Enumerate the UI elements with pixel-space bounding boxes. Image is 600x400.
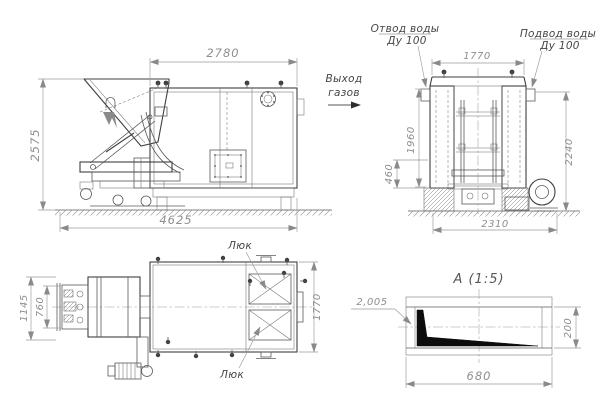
side-view-dimensions: 2780 2575 4625 bbox=[28, 46, 297, 232]
hatch-label-bottom: Люк bbox=[219, 327, 260, 381]
dim-height-outer: 1145 bbox=[19, 294, 30, 321]
hatch-top-text: Люк bbox=[227, 240, 252, 252]
boiler-body-front bbox=[421, 68, 535, 214]
fuel-feeder-plan bbox=[57, 277, 153, 379]
water-outlet-nozzle bbox=[421, 89, 430, 101]
dim-width-top: 2780 bbox=[206, 46, 239, 60]
dim-height-right: 1770 bbox=[312, 293, 323, 320]
dim-leader-text: 2,005 bbox=[356, 297, 387, 308]
water-inlet-line1: Подвод воды bbox=[520, 28, 596, 40]
wheel-icon bbox=[141, 196, 151, 206]
dim-height-inner: 760 bbox=[35, 297, 46, 318]
fuel-hopper-loader bbox=[80, 79, 185, 206]
water-inlet-line2: Ду 100 bbox=[539, 40, 580, 52]
pipe-stub bbox=[261, 257, 271, 262]
foundation-block bbox=[502, 188, 528, 211]
dim-height-left: 2575 bbox=[28, 128, 42, 161]
manhole-top bbox=[249, 274, 291, 304]
water-inlet-label: Подвод воды Ду 100 bbox=[520, 28, 596, 87]
scraper-wedge-profile bbox=[417, 310, 538, 346]
water-outlet-line1: Отвод воды bbox=[371, 23, 440, 35]
ground-hatch bbox=[408, 212, 580, 217]
plan-view: Люк Люк 1145 760 1770 bbox=[19, 240, 323, 381]
tip-direction-arrow-icon bbox=[103, 112, 117, 128]
water-inlet-nozzle bbox=[526, 89, 535, 101]
front-elevation-view: Отвод воды Ду 100 Подвод воды Ду 100 177… bbox=[371, 23, 597, 234]
furnace-door bbox=[210, 150, 246, 182]
water-outlet-line2: Ду 100 bbox=[386, 35, 427, 47]
dim-height-right: 2240 bbox=[564, 138, 575, 165]
gas-label-line1: Выход bbox=[326, 73, 363, 85]
side-nozzle bbox=[297, 99, 304, 115]
dim-height-base: 460 bbox=[384, 164, 395, 185]
detail-a-view: А (1:5) 2,005 680 200 bbox=[351, 272, 581, 388]
drive-pump-icon bbox=[81, 189, 92, 200]
front-view-dimensions: 1770 1960 460 2240 2310 bbox=[384, 51, 575, 234]
water-outlet-label: Отвод воды Ду 100 bbox=[371, 23, 440, 87]
dim-height-mid: 1960 bbox=[406, 126, 417, 153]
thickness-leader: 2,005 bbox=[351, 297, 411, 324]
detail-a-section bbox=[398, 289, 560, 363]
gas-label-line2: газов bbox=[328, 87, 360, 99]
boiler-body-side bbox=[150, 81, 304, 210]
detail-title: А (1:5) bbox=[452, 272, 504, 287]
dim-width-bottom: 4625 bbox=[159, 213, 192, 227]
dim-width-bottom: 2310 bbox=[481, 219, 508, 230]
ground-hatch bbox=[55, 211, 332, 216]
lifting-eye-icon bbox=[156, 81, 284, 88]
gas-flow-arrow-icon bbox=[351, 102, 361, 109]
flange-icon bbox=[261, 92, 276, 107]
detail-view-dimensions: 680 200 bbox=[406, 307, 581, 388]
dim-height: 200 bbox=[563, 318, 574, 339]
technical-drawing-sheet: 2780 2575 4625 Выход газов bbox=[0, 0, 600, 400]
foundation-block bbox=[424, 188, 454, 211]
gear-motor-icon bbox=[108, 363, 141, 379]
pipe-stub bbox=[261, 352, 271, 357]
side-elevation-view: 2780 2575 4625 Выход газов bbox=[28, 46, 362, 232]
dim-width-top: 1770 bbox=[463, 51, 490, 62]
wheel-icon bbox=[113, 195, 123, 205]
gas-outlet-label: Выход газов bbox=[326, 73, 363, 109]
dim-width: 680 bbox=[467, 369, 492, 383]
hatch-bottom-text: Люк bbox=[219, 369, 244, 381]
